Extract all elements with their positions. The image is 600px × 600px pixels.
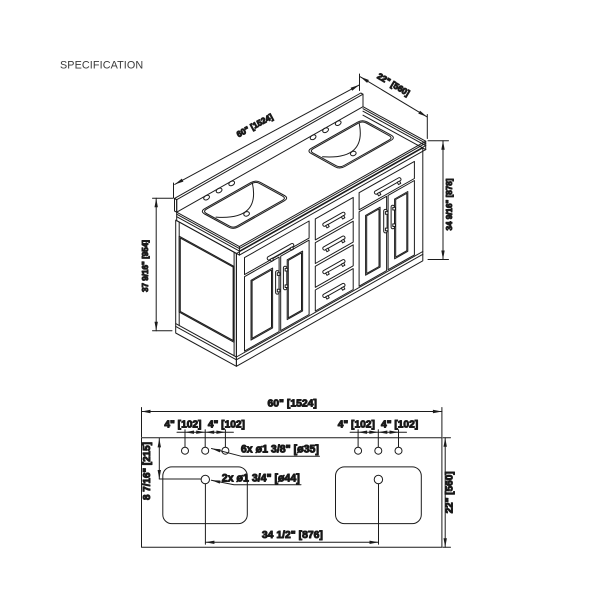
svg-text:60" [1524]: 60" [1524] (267, 398, 316, 409)
svg-text:4" [102]: 4" [102] (208, 420, 245, 431)
svg-text:2x ø1 3/4" [ø44]: 2x ø1 3/4" [ø44] (222, 472, 300, 484)
svg-text:37 9/16" [954]: 37 9/16" [954] (141, 240, 150, 292)
svg-text:34 1/2" [876]: 34 1/2" [876] (262, 530, 323, 541)
svg-text:34 9/16" [878]: 34 9/16" [878] (445, 178, 454, 230)
svg-text:6x ø1 3/8" [ø35]: 6x ø1 3/8" [ø35] (241, 444, 319, 456)
svg-text:SPECIFICATION: SPECIFICATION (60, 60, 143, 72)
svg-text:4" [102]: 4" [102] (381, 420, 418, 431)
svg-text:4" [102]: 4" [102] (164, 420, 201, 431)
svg-text:4" [102]: 4" [102] (338, 420, 375, 431)
svg-text:8 7/16" [215]: 8 7/16" [215] (142, 442, 153, 500)
svg-text:22" [560]: 22" [560] (444, 471, 455, 513)
